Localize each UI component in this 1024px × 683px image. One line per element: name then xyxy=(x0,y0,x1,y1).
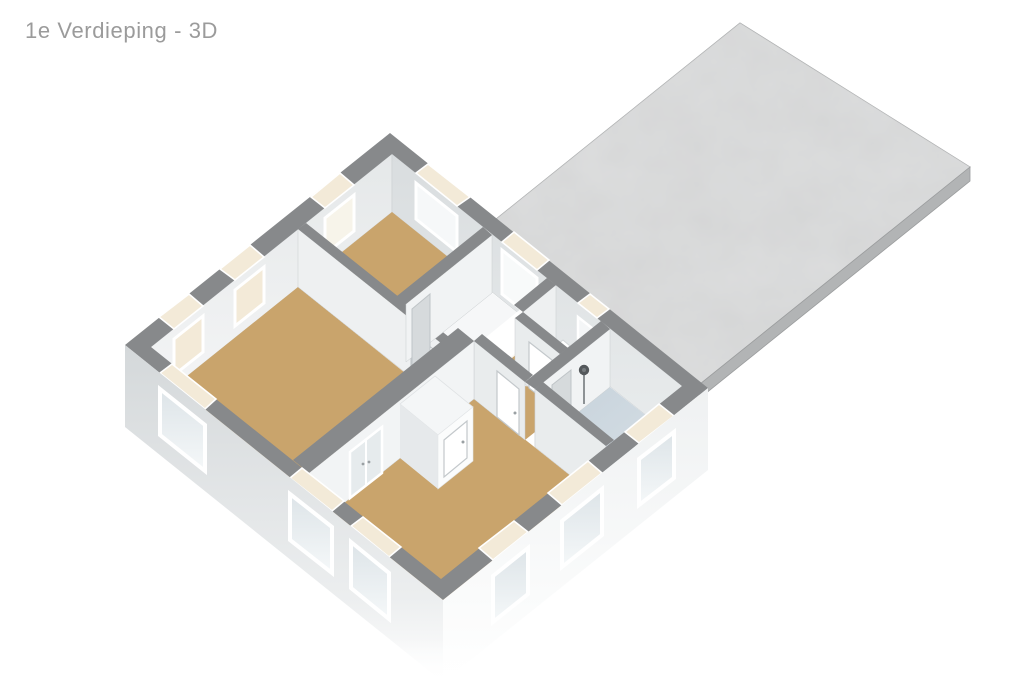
floorplan-page: 1e Verdieping - 3D xyxy=(0,0,1024,683)
floorplan-3d-scene xyxy=(0,0,1024,683)
bottom-fade xyxy=(0,638,1024,683)
